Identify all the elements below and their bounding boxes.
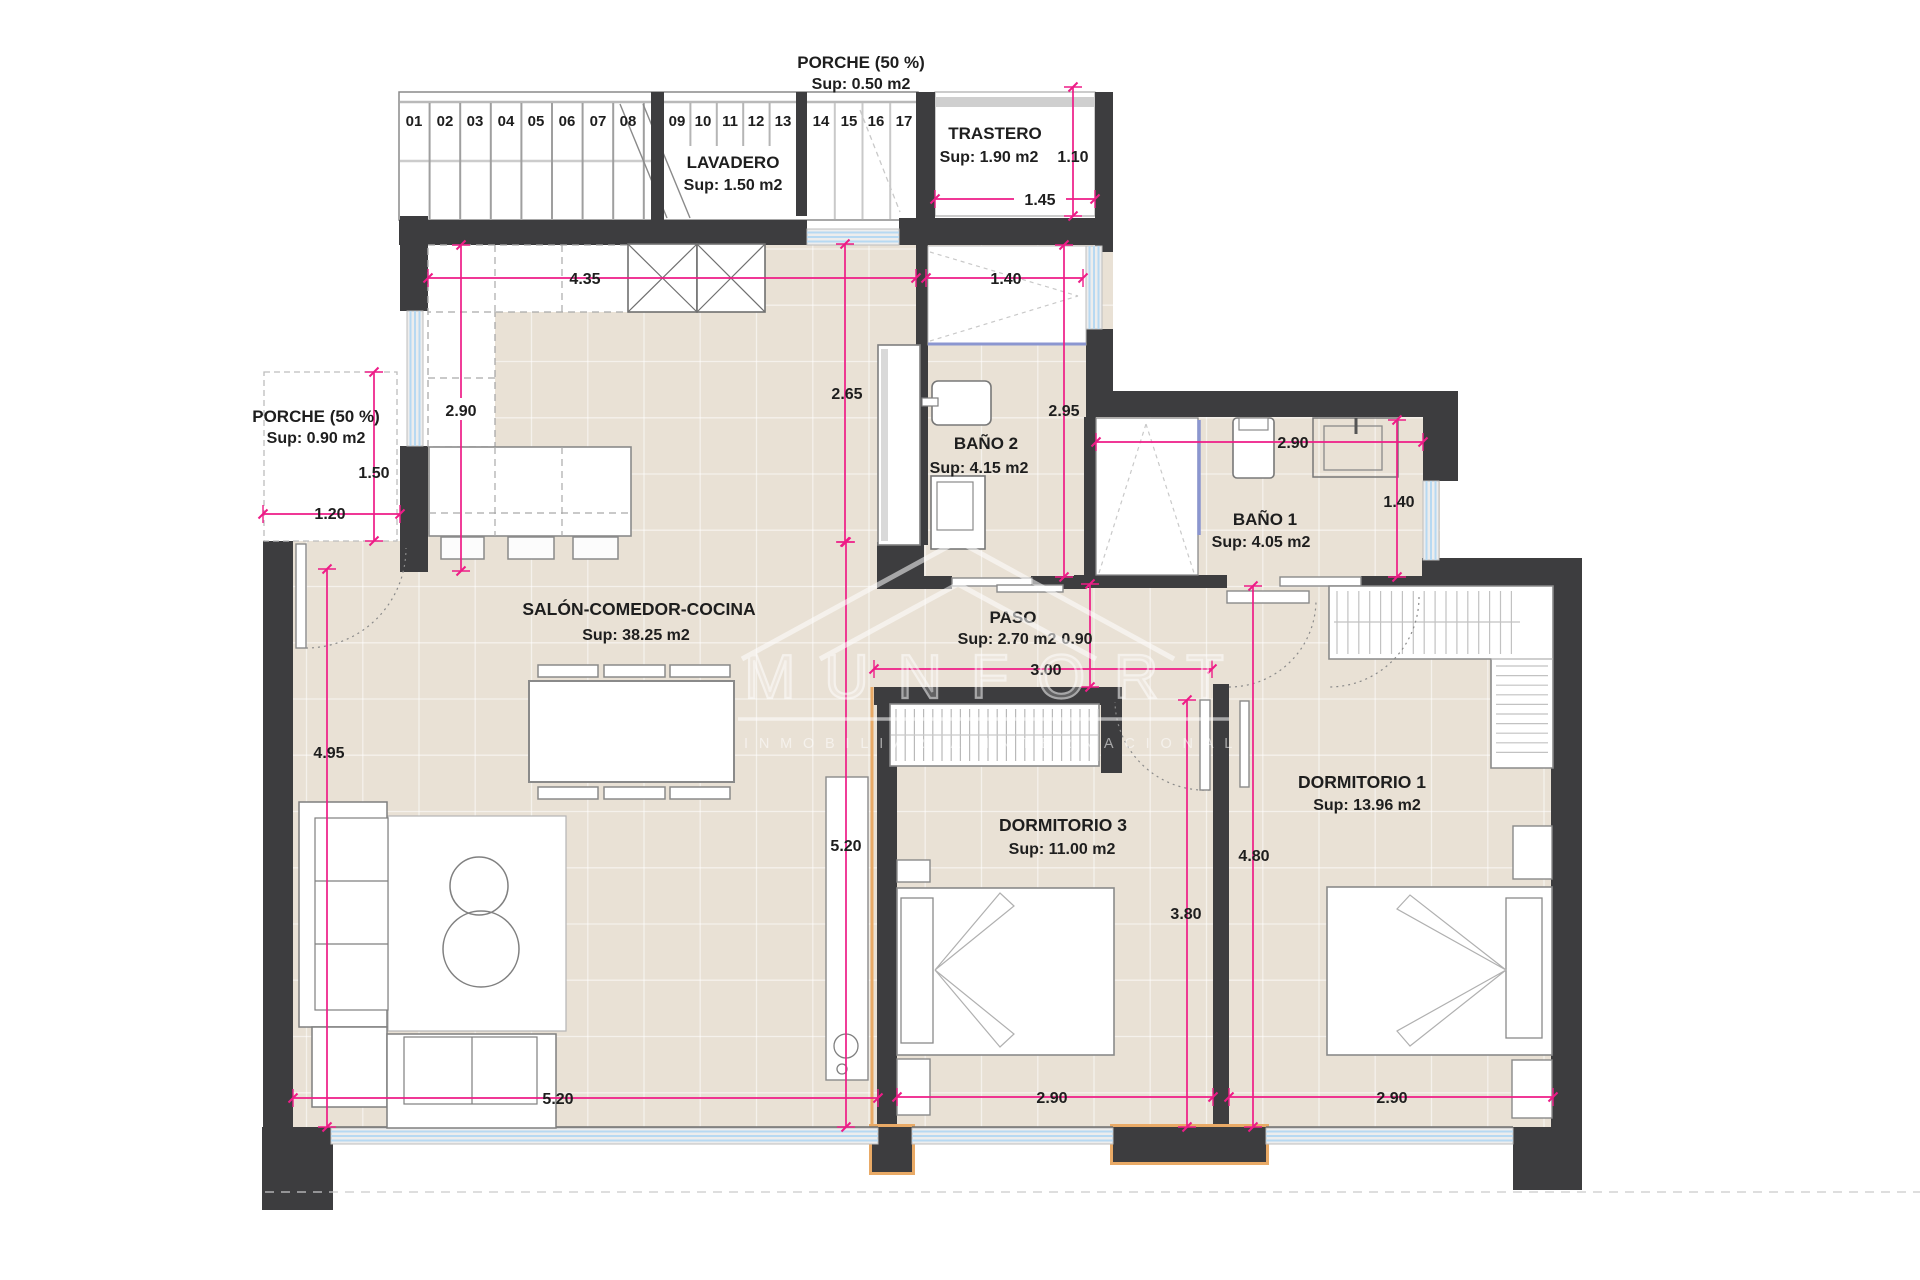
svg-text:3.80: 3.80	[1170, 906, 1201, 923]
svg-text:5.20: 5.20	[830, 838, 861, 855]
svg-text:2.90: 2.90	[1376, 1090, 1407, 1107]
svg-text:PORCHE (50 %): PORCHE (50 %)	[252, 407, 380, 426]
svg-text:DORMITORIO 1: DORMITORIO 1	[1298, 772, 1426, 792]
svg-text:MUNFORT: MUNFORT	[744, 643, 1252, 712]
svg-text:2.90: 2.90	[1277, 435, 1308, 452]
svg-text:01: 01	[406, 113, 423, 130]
svg-text:13: 13	[775, 113, 792, 130]
svg-text:10: 10	[695, 113, 712, 130]
svg-text:09: 09	[669, 113, 686, 130]
svg-text:1.45: 1.45	[1024, 192, 1055, 209]
svg-text:1.10: 1.10	[1057, 149, 1088, 166]
svg-text:1.20: 1.20	[314, 506, 345, 523]
svg-text:Sup: 1.90 m2: Sup: 1.90 m2	[940, 149, 1039, 166]
svg-text:1.40: 1.40	[1383, 494, 1414, 511]
svg-text:05: 05	[528, 113, 545, 130]
svg-text:08: 08	[620, 113, 637, 130]
svg-text:07: 07	[590, 113, 607, 130]
svg-text:Sup: 0.50 m2: Sup: 0.50 m2	[812, 76, 911, 93]
svg-text:2.65: 2.65	[831, 386, 862, 403]
svg-text:BAÑO 2: BAÑO 2	[954, 433, 1018, 453]
svg-text:BAÑO 1: BAÑO 1	[1233, 509, 1297, 529]
svg-text:PORCHE (50 %): PORCHE (50 %)	[797, 53, 925, 72]
svg-text:2.95: 2.95	[1048, 403, 1079, 420]
svg-text:Sup: 4.05 m2: Sup: 4.05 m2	[1212, 534, 1311, 551]
svg-text:5.20: 5.20	[542, 1091, 573, 1108]
svg-text:4.95: 4.95	[313, 745, 344, 762]
svg-text:17: 17	[896, 113, 913, 130]
svg-text:14: 14	[813, 113, 830, 130]
svg-text:1.50: 1.50	[358, 465, 389, 482]
svg-text:02: 02	[437, 113, 454, 130]
svg-text:03: 03	[467, 113, 484, 130]
svg-text:Sup: 0.90 m2: Sup: 0.90 m2	[267, 430, 366, 447]
svg-text:DORMITORIO 3: DORMITORIO 3	[999, 815, 1127, 835]
svg-text:16: 16	[868, 113, 885, 130]
svg-text:Sup: 38.25 m2: Sup: 38.25 m2	[582, 627, 690, 644]
svg-text:04: 04	[498, 113, 515, 130]
svg-text:Sup: 11.00 m2: Sup: 11.00 m2	[1009, 841, 1116, 858]
svg-text:4.35: 4.35	[569, 271, 600, 288]
svg-text:SALÓN-COMEDOR-COCINA: SALÓN-COMEDOR-COCINA	[522, 598, 756, 619]
svg-text:INMOBILIARIA INTERNACIONAL: INMOBILIARIA INTERNACIONAL	[744, 736, 1243, 752]
svg-text:06: 06	[559, 113, 576, 130]
svg-text:Sup: 1.50 m2: Sup: 1.50 m2	[684, 177, 783, 194]
svg-text:1.40: 1.40	[990, 271, 1021, 288]
svg-text:12: 12	[748, 113, 765, 130]
svg-text:2.90: 2.90	[445, 403, 476, 420]
svg-text:Sup: 4.15 m2: Sup: 4.15 m2	[930, 460, 1029, 477]
svg-text:4.80: 4.80	[1238, 848, 1269, 865]
svg-text:TRASTERO: TRASTERO	[948, 124, 1042, 143]
svg-text:Sup: 13.96 m2: Sup: 13.96 m2	[1313, 797, 1421, 814]
svg-text:11: 11	[722, 113, 738, 130]
svg-text:LAVADERO: LAVADERO	[687, 153, 780, 172]
svg-text:2.90: 2.90	[1036, 1090, 1067, 1107]
svg-text:15: 15	[841, 113, 858, 130]
